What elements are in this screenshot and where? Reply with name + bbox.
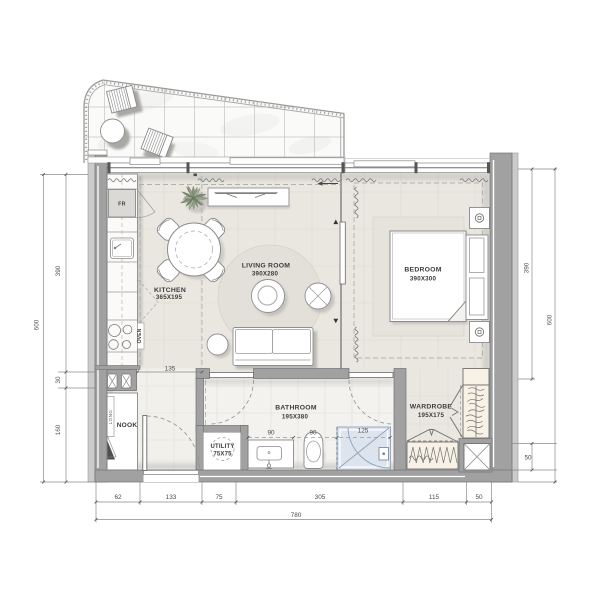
svg-text:KITCHEN: KITCHEN bbox=[154, 287, 186, 294]
svg-text:125: 125 bbox=[358, 428, 369, 435]
svg-text:305: 305 bbox=[315, 494, 326, 501]
svg-text:365X195: 365X195 bbox=[156, 294, 183, 301]
svg-text:135: 135 bbox=[165, 366, 176, 373]
svg-text:62: 62 bbox=[114, 494, 122, 501]
svg-text:390: 390 bbox=[524, 262, 531, 273]
svg-text:160: 160 bbox=[55, 424, 62, 435]
svg-text:LONG: LONG bbox=[108, 410, 113, 425]
svg-text:390: 390 bbox=[55, 265, 62, 276]
svg-text:FR: FR bbox=[118, 202, 126, 208]
svg-text:600: 600 bbox=[547, 314, 554, 325]
svg-text:30: 30 bbox=[55, 376, 62, 384]
svg-text:390X300: 390X300 bbox=[410, 276, 437, 283]
svg-text:WARDROBE: WARDROBE bbox=[410, 404, 453, 411]
svg-text:600: 600 bbox=[34, 319, 41, 330]
svg-text:75X75: 75X75 bbox=[213, 452, 232, 458]
svg-text:50: 50 bbox=[475, 494, 483, 501]
svg-text:90: 90 bbox=[309, 430, 317, 437]
svg-text:NOOK: NOOK bbox=[117, 422, 138, 429]
svg-text:OVEN: OVEN bbox=[137, 328, 143, 343]
svg-text:133: 133 bbox=[166, 494, 177, 501]
svg-text:780: 780 bbox=[291, 512, 302, 519]
svg-text:195X175: 195X175 bbox=[418, 412, 445, 419]
svg-text:50: 50 bbox=[524, 455, 532, 462]
svg-text:UTILITY: UTILITY bbox=[210, 444, 234, 450]
svg-text:BATHROOM: BATHROOM bbox=[275, 405, 317, 412]
svg-text:BEDROOM: BEDROOM bbox=[404, 267, 441, 274]
svg-text:75: 75 bbox=[215, 494, 223, 501]
svg-text:195X380: 195X380 bbox=[282, 414, 309, 421]
svg-text:115: 115 bbox=[429, 494, 440, 501]
svg-text:90: 90 bbox=[267, 430, 275, 437]
svg-text:LIVING ROOM: LIVING ROOM bbox=[242, 263, 291, 270]
svg-text:390X280: 390X280 bbox=[252, 271, 279, 278]
